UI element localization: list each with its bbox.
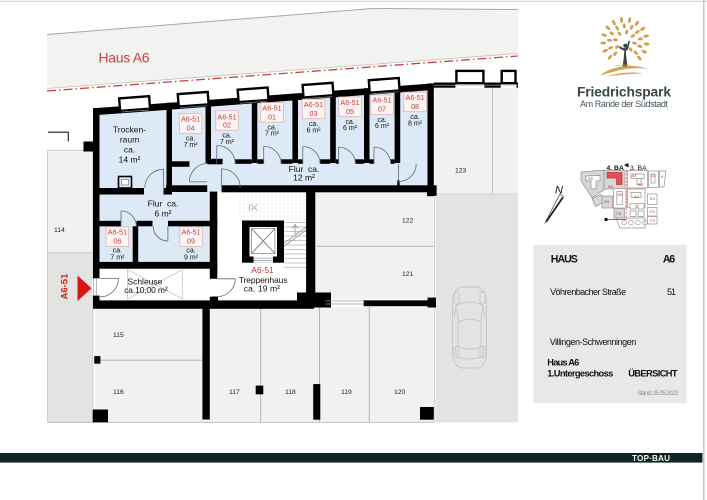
svg-text:C4: C4 — [651, 173, 657, 178]
svg-text:6 m²: 6 m² — [343, 125, 358, 132]
svg-text:118: 118 — [285, 389, 296, 396]
svg-text:A6-51: A6-51 — [108, 228, 127, 237]
svg-text:09: 09 — [187, 237, 195, 246]
svg-text:A6-51: A6-51 — [60, 273, 71, 300]
svg-text:K: K — [661, 174, 664, 179]
svg-text:Am Rande der Südstadt: Am Rande der Südstadt — [580, 99, 668, 109]
svg-text:F5: F5 — [617, 211, 622, 216]
svg-text:114: 114 — [54, 227, 65, 234]
svg-text:Stand: 25.05.2023: Stand: 25.05.2023 — [637, 390, 679, 397]
svg-text:02: 02 — [223, 121, 231, 130]
svg-text:03: 03 — [310, 109, 318, 118]
svg-text:07: 07 — [378, 105, 386, 114]
svg-text:ca.: ca. — [113, 247, 122, 254]
svg-text:E5: E5 — [605, 199, 611, 204]
svg-text:E4: E4 — [650, 196, 656, 201]
svg-text:A6-51: A6-51 — [304, 100, 323, 109]
svg-text:115: 115 — [113, 332, 124, 339]
svg-text:TOP·BAU: TOP·BAU — [632, 454, 670, 463]
svg-text:121: 121 — [402, 271, 414, 278]
svg-text:A6-51: A6-51 — [181, 115, 200, 124]
svg-text:116: 116 — [113, 389, 124, 396]
svg-text:04: 04 — [187, 124, 195, 133]
svg-text:A6-51: A6-51 — [372, 96, 391, 105]
svg-text:06: 06 — [113, 237, 121, 246]
svg-text:N: N — [555, 185, 563, 197]
svg-text:01: 01 — [268, 112, 276, 121]
svg-text:A6-51: A6-51 — [262, 103, 281, 112]
svg-text:08: 08 — [411, 102, 419, 111]
svg-text:Friedrichspark: Friedrichspark — [577, 85, 671, 100]
svg-text:7 m²: 7 m² — [110, 255, 125, 262]
svg-text:A6-51: A6-51 — [405, 93, 424, 102]
svg-text:A3: A3 — [632, 173, 638, 178]
svg-text:ÜBERSICHT: ÜBERSICHT — [628, 368, 678, 378]
svg-text:ca.10,00 m²: ca.10,00 m² — [124, 285, 168, 295]
svg-text:3. BA: 3. BA — [630, 165, 647, 172]
svg-text:51: 51 — [667, 287, 676, 297]
svg-text:123: 123 — [455, 168, 467, 175]
svg-text:ca. 19 m²: ca. 19 m² — [244, 283, 280, 293]
svg-text:ca.: ca. — [186, 247, 195, 254]
svg-text:F3: F3 — [650, 218, 655, 223]
svg-text:Villingen-Schwenningen: Villingen-Schwenningen — [550, 337, 637, 347]
svg-text:A6-51: A6-51 — [340, 98, 359, 107]
svg-text:A6-51: A6-51 — [251, 265, 274, 275]
svg-text:raum: raum — [120, 135, 139, 145]
svg-text:B3: B3 — [638, 182, 644, 187]
svg-text:A6-51: A6-51 — [181, 228, 200, 237]
svg-text:05: 05 — [346, 107, 354, 116]
svg-text:6 m²: 6 m² — [307, 127, 322, 134]
svg-text:B6: B6 — [608, 184, 614, 189]
svg-text:7 m²: 7 m² — [220, 139, 235, 146]
svg-text:122: 122 — [402, 218, 414, 225]
svg-text:6 m²: 6 m² — [375, 123, 390, 130]
svg-text:9 m²: 9 m² — [184, 255, 199, 262]
svg-text:Flur ca.: Flur ca. — [148, 199, 179, 209]
svg-text:ca.: ca. — [124, 145, 135, 155]
svg-text:119: 119 — [341, 389, 352, 396]
svg-text:1.Untergeschoss: 1.Untergeschoss — [547, 368, 613, 378]
svg-text:7 m²: 7 m² — [184, 142, 199, 149]
svg-text:8 m²: 8 m² — [408, 120, 423, 127]
svg-text:7 m²: 7 m² — [265, 131, 280, 138]
svg-text:A4: A4 — [634, 194, 640, 199]
svg-text:Haus A6: Haus A6 — [99, 49, 150, 65]
svg-text:Trocken-: Trocken- — [113, 125, 146, 135]
svg-text:120: 120 — [394, 389, 406, 396]
svg-text:Vöhrenbacher Straße: Vöhrenbacher Straße — [550, 287, 626, 297]
svg-text:A6: A6 — [663, 254, 675, 266]
svg-text:4. BA: 4. BA — [607, 165, 624, 172]
svg-text:14 m²: 14 m² — [119, 155, 141, 165]
svg-text:A5: A5 — [588, 176, 594, 181]
svg-text:HAUS: HAUS — [551, 254, 578, 266]
svg-text:12 m²: 12 m² — [293, 173, 315, 183]
svg-text:Haus A6: Haus A6 — [547, 358, 579, 368]
svg-text:F4: F4 — [650, 209, 655, 214]
svg-text:6 m²: 6 m² — [155, 209, 172, 219]
svg-text:117: 117 — [229, 389, 240, 396]
svg-text:D5: D5 — [618, 192, 624, 197]
